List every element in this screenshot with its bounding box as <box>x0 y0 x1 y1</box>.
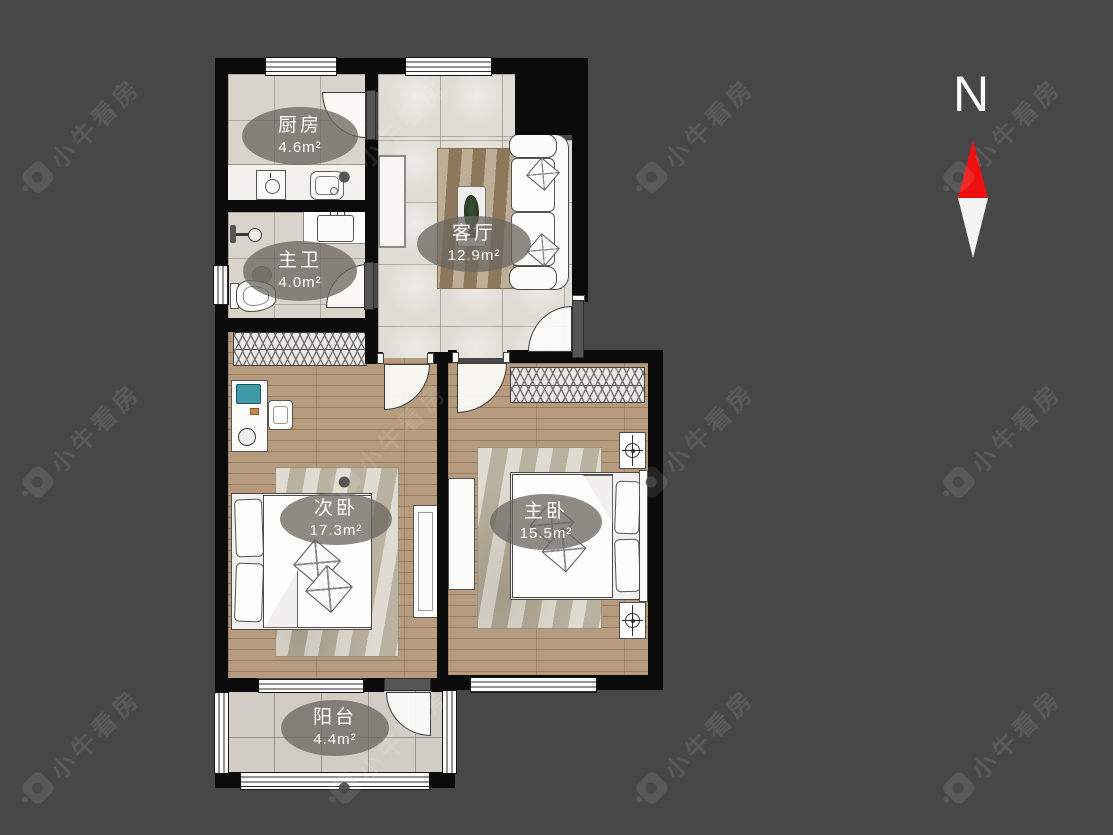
kitchen-sink-icon <box>310 171 344 200</box>
wall-balcony-corner <box>215 772 240 788</box>
brand-logo-icon <box>20 464 57 501</box>
ac-crosshair-v <box>632 435 633 466</box>
sofa-arm-bottom <box>509 266 557 290</box>
wall-between-bedrooms <box>437 352 448 685</box>
wall-master-right <box>648 350 663 690</box>
watermark: 小牛看房 <box>936 329 1113 506</box>
compass-north-label: N <box>953 65 989 123</box>
ac-unit-icon <box>619 432 646 469</box>
door-jamb <box>427 353 434 364</box>
room-name: 客厅 <box>452 224 496 245</box>
balcony-bottom-window <box>240 772 430 790</box>
brand-logo-icon <box>634 159 671 196</box>
room-label-master-bath: 主卫 4.0m² <box>243 241 357 301</box>
desk-item <box>250 408 259 415</box>
room-area: 17.3m² <box>310 522 363 539</box>
dresser-top <box>418 512 433 611</box>
brand-logo-icon <box>941 464 978 501</box>
watermark: 小牛看房 <box>936 635 1113 812</box>
room-area: 4.0m² <box>278 274 321 291</box>
stove-knob <box>270 173 271 178</box>
door-jamb <box>377 353 384 364</box>
room-label-living-room: 客厅 12.9m² <box>417 216 531 272</box>
watermark: 小牛看房 <box>15 635 192 812</box>
wall-bedroom-balcony <box>362 678 384 692</box>
room-label-kitchen: 厨房 4.6m² <box>242 107 358 165</box>
balcony-door-leaf <box>384 678 431 691</box>
door-jamb <box>452 352 459 363</box>
brand-logo-icon <box>20 159 57 196</box>
room-label-balcony: 阳台 4.4m² <box>281 700 389 756</box>
room-name: 主卫 <box>278 251 322 272</box>
watermark: 小牛看房 <box>629 24 806 201</box>
bath-door-leaf <box>364 262 374 310</box>
balcony-right-window <box>442 690 457 774</box>
desk-lamp-icon <box>238 428 256 446</box>
master-headboard <box>639 470 648 602</box>
ac-unit-icon <box>619 602 646 639</box>
bed-pillow <box>234 499 264 558</box>
bed-pillow <box>614 481 641 535</box>
entry-door-leaf <box>572 300 584 358</box>
bed-pillow <box>234 563 264 623</box>
second-bedroom-dresser <box>413 505 438 618</box>
brand-logo-icon <box>634 770 671 807</box>
wall-bedroom-balcony <box>228 678 258 692</box>
watermark: 小牛看房 <box>15 24 192 201</box>
wall-left <box>215 58 228 692</box>
kitchen-door-leaf <box>366 90 376 140</box>
bedroom-balcony-window <box>258 679 364 693</box>
sofa <box>509 134 569 290</box>
shower-head-icon <box>248 228 262 242</box>
second-bedroom-wardrobe <box>233 332 367 366</box>
stove-burner <box>265 179 280 194</box>
wall-kitchen-bath <box>228 200 368 212</box>
room-area: 12.9m² <box>448 247 501 264</box>
brand-logo-icon <box>20 770 57 807</box>
compass-needle-south <box>958 198 988 258</box>
brand-logo-icon <box>941 770 978 807</box>
master-wardrobe <box>510 367 645 403</box>
room-label-master-bedroom: 主卧 15.5m² <box>490 494 602 550</box>
room-name: 主卧 <box>524 502 568 523</box>
kitchen-counter <box>228 164 365 203</box>
master-cabinet <box>448 478 475 590</box>
balcony-left-window <box>214 692 229 774</box>
bath-window <box>213 265 229 305</box>
desk-chair <box>268 400 293 430</box>
watermark: 小牛看房 <box>15 329 192 506</box>
ac-crosshair-v <box>632 605 633 636</box>
room-area: 4.6m² <box>278 139 321 156</box>
door-jamb <box>503 352 510 363</box>
bath-sink-icon <box>317 215 354 242</box>
shower-valve-icon <box>230 225 236 243</box>
floor-plan-canvas: 厨房 4.6m² 主卫 4.0m² 客厅 12.9m² 次卧 17.3m² 主卧… <box>0 0 1113 835</box>
master-bottom-window <box>470 677 597 693</box>
wall-kitchen-living <box>365 58 378 92</box>
living-window <box>405 57 492 76</box>
monitor-icon <box>236 384 261 404</box>
kitchen-faucet <box>330 187 338 195</box>
sofa-arm-top <box>509 134 557 158</box>
wall-bath-bedroom <box>215 318 368 332</box>
kitchen-window <box>265 57 337 76</box>
wall-balcony-corner <box>428 772 455 788</box>
room-area: 15.5m² <box>520 525 573 542</box>
hall-cabinet <box>378 155 406 248</box>
stove-icon <box>256 170 286 200</box>
wall-top-right-block <box>515 58 588 135</box>
bed-pillow <box>614 539 641 593</box>
room-name: 阳台 <box>313 708 357 729</box>
room-area: 4.4m² <box>313 731 356 748</box>
room-label-second-bedroom: 次卧 17.3m² <box>280 493 392 545</box>
living-room-floor-upper <box>378 74 515 144</box>
wall-living-right <box>572 130 588 302</box>
room-name: 次卧 <box>314 499 358 520</box>
compass-needle-north <box>958 140 988 198</box>
desk-chair-seat <box>273 406 288 424</box>
room-name: 厨房 <box>278 116 322 137</box>
